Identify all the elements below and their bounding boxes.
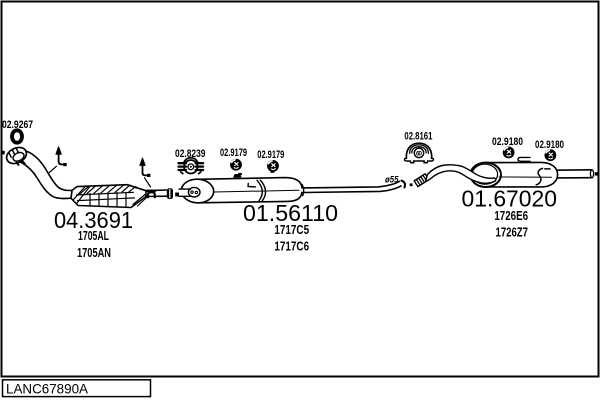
svg-text:02.8239: 02.8239 [175, 148, 206, 160]
svg-text:ø55: ø55 [385, 174, 399, 185]
svg-text:02.8161: 02.8161 [404, 131, 432, 143]
svg-text:02.9179: 02.9179 [257, 149, 284, 161]
svg-text:02.9179: 02.9179 [220, 147, 247, 159]
svg-text:1726Z7: 1726Z7 [496, 225, 529, 239]
svg-text:1717C5: 1717C5 [274, 223, 309, 237]
svg-text:1705AL: 1705AL [78, 229, 109, 243]
svg-text:1705AN: 1705AN [77, 246, 111, 260]
svg-text:02.9180: 02.9180 [492, 136, 523, 148]
svg-text:02.9180: 02.9180 [535, 139, 564, 151]
svg-text:LANC67890A: LANC67890A [6, 380, 89, 396]
svg-text:60: 60 [416, 150, 422, 157]
svg-text:1717C6: 1717C6 [274, 239, 309, 253]
svg-text:02.9267: 02.9267 [2, 119, 33, 131]
svg-text:01.67020: 01.67020 [462, 186, 558, 212]
svg-text:1726E6: 1726E6 [494, 209, 528, 223]
